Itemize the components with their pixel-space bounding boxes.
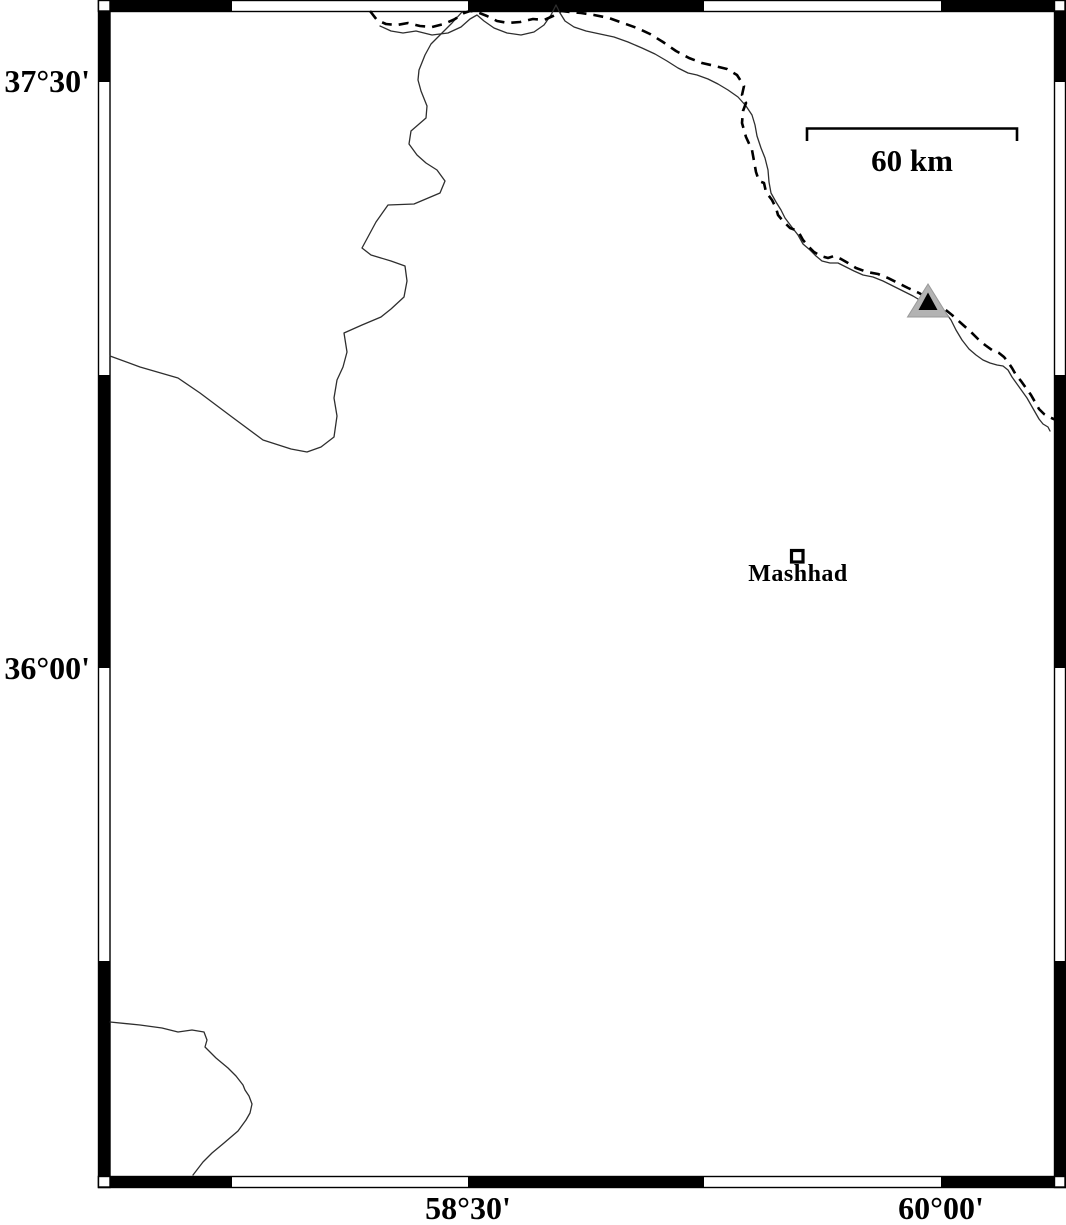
lat-annotation-36-00: 36°00': [0, 648, 90, 688]
frame-seg: [941, 1, 1054, 12]
river-west: [110, 12, 462, 452]
lon-annotation-60-00: 60°00': [898, 1190, 984, 1225]
frame-corner: [1055, 1177, 1066, 1188]
map-figure: 37°30' 36°00' 58°30' 60°00' 60 km Mashha…: [0, 0, 1066, 1225]
river-lines: [110, 5, 1050, 1175]
scale-bar: [807, 129, 1017, 142]
frame-seg: [1055, 11, 1066, 82]
frame-corner: [1055, 1, 1066, 12]
frame-seg: [99, 375, 111, 668]
scale-bar-label: 60 km: [871, 144, 953, 178]
frame-seg: [110, 1177, 232, 1188]
frame-seg: [99, 11, 111, 82]
lon-annotation-58-30: 58°30': [425, 1190, 511, 1225]
frame-seg: [110, 1, 232, 12]
station-triangle-icon: [908, 284, 949, 317]
international-border-dashed: [370, 11, 1056, 420]
frame-corner: [99, 1177, 111, 1188]
map-frame: [99, 1, 1066, 1188]
river-northeast: [380, 5, 1050, 431]
frame-seg: [468, 1177, 704, 1188]
frame-seg: [99, 961, 111, 1176]
city-name-label: Mashhad: [748, 561, 848, 587]
frame-seg: [468, 1, 704, 12]
map-canvas: [0, 0, 1066, 1225]
frame-corner: [99, 1, 111, 12]
lat-annotation-37-30: 37°30': [0, 61, 90, 101]
river-southwest: [110, 1022, 252, 1175]
frame-seg: [1055, 961, 1066, 1176]
frame-seg: [941, 1177, 1054, 1188]
